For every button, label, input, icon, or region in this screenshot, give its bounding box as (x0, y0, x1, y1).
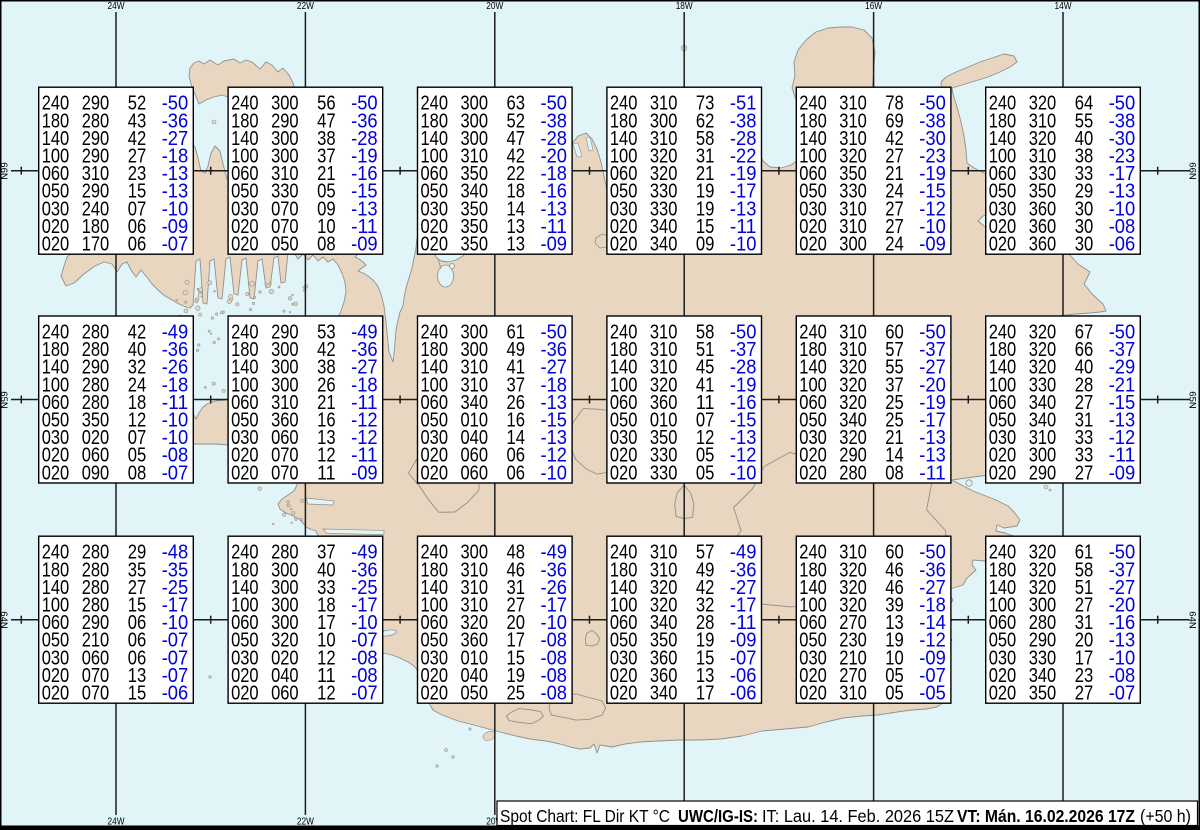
svg-text:08: 08 (128, 462, 147, 484)
svg-text:11: 11 (317, 462, 336, 484)
svg-text:020: 020 (610, 683, 638, 705)
svg-text:15: 15 (128, 683, 147, 705)
svg-text:-07: -07 (1109, 683, 1136, 705)
svg-text:12: 12 (317, 683, 336, 705)
svg-text:-06: -06 (162, 683, 189, 705)
svg-text:27: 27 (1075, 462, 1094, 484)
svg-text:30: 30 (1075, 234, 1094, 256)
svg-text:300: 300 (839, 234, 867, 256)
svg-text:27: 27 (1075, 683, 1094, 705)
svg-text:64N: 64N (1187, 611, 1198, 629)
svg-text:020: 020 (42, 683, 69, 705)
svg-text:06: 06 (507, 462, 526, 484)
svg-text:65N: 65N (1187, 391, 1198, 409)
svg-text:060: 060 (461, 462, 489, 484)
svg-text:310: 310 (839, 683, 867, 705)
svg-text:66N: 66N (1187, 162, 1198, 180)
svg-text:25: 25 (507, 683, 526, 705)
svg-text:070: 070 (271, 462, 299, 484)
svg-text:16W: 16W (865, 1, 882, 12)
svg-text:020: 020 (989, 234, 1017, 256)
svg-text:20W: 20W (486, 1, 503, 12)
svg-text:-10: -10 (730, 462, 757, 484)
svg-text:05: 05 (696, 462, 715, 484)
svg-text:IT: Lau. 14. Feb. 2026 15Z: IT: Lau. 14. Feb. 2026 15Z (762, 806, 954, 826)
svg-text:24W: 24W (108, 1, 125, 12)
svg-text:290: 290 (1029, 462, 1057, 484)
svg-text:09: 09 (696, 234, 715, 256)
svg-text:350: 350 (461, 234, 489, 256)
svg-text:Spot Chart: FL Dir KT °C: Spot Chart: FL Dir KT °C (500, 806, 670, 826)
svg-text:020: 020 (42, 234, 69, 256)
svg-text:020: 020 (799, 234, 827, 256)
svg-text:17: 17 (696, 683, 715, 705)
svg-text:-11: -11 (919, 462, 946, 484)
svg-text:340: 340 (650, 683, 678, 705)
svg-text:050: 050 (271, 234, 299, 256)
svg-text:020: 020 (610, 234, 638, 256)
svg-text:020: 020 (421, 234, 449, 256)
svg-text:24: 24 (885, 234, 904, 256)
svg-text:020: 020 (799, 462, 827, 484)
svg-text:020: 020 (231, 234, 259, 256)
svg-text:13: 13 (507, 234, 526, 256)
svg-text:-06: -06 (1109, 234, 1136, 256)
svg-text:18W: 18W (676, 1, 693, 12)
svg-text:020: 020 (989, 462, 1017, 484)
svg-text:020: 020 (421, 462, 449, 484)
svg-text:020: 020 (799, 683, 827, 705)
svg-text:-10: -10 (541, 462, 568, 484)
svg-text:(+50 h): (+50 h) (1140, 806, 1191, 826)
svg-text:-09: -09 (919, 234, 946, 256)
svg-text:360: 360 (1029, 234, 1057, 256)
svg-text:350: 350 (1029, 683, 1057, 705)
svg-text:22W: 22W (297, 1, 314, 12)
svg-text:-07: -07 (162, 462, 189, 484)
svg-text:050: 050 (461, 683, 489, 705)
svg-text:090: 090 (82, 462, 110, 484)
svg-text:-09: -09 (541, 234, 568, 256)
svg-text:070: 070 (82, 683, 110, 705)
svg-text:-10: -10 (730, 234, 757, 256)
svg-text:020: 020 (421, 683, 449, 705)
svg-text:UWC/IG-IS:: UWC/IG-IS: (678, 806, 758, 826)
svg-text:-05: -05 (919, 683, 946, 705)
svg-text:-09: -09 (351, 462, 378, 484)
svg-text:020: 020 (610, 462, 638, 484)
svg-text:VT: Mán. 16.02.2026 17Z: VT: Mán. 16.02.2026 17Z (957, 806, 1135, 826)
svg-text:08: 08 (885, 462, 904, 484)
svg-text:-06: -06 (730, 683, 757, 705)
svg-text:-09: -09 (351, 234, 378, 256)
svg-text:340: 340 (650, 234, 678, 256)
svg-text:330: 330 (650, 462, 678, 484)
svg-text:-07: -07 (351, 683, 378, 705)
svg-text:060: 060 (271, 683, 299, 705)
svg-text:020: 020 (231, 683, 259, 705)
svg-text:280: 280 (839, 462, 867, 484)
svg-text:020: 020 (231, 462, 259, 484)
svg-text:06: 06 (128, 234, 147, 256)
svg-text:-09: -09 (1109, 462, 1136, 484)
svg-text:-08: -08 (541, 683, 568, 705)
svg-text:08: 08 (317, 234, 336, 256)
svg-text:170: 170 (82, 234, 110, 256)
svg-text:020: 020 (42, 462, 69, 484)
svg-text:05: 05 (885, 683, 904, 705)
svg-text:14W: 14W (1055, 1, 1072, 12)
svg-text:-07: -07 (162, 234, 189, 256)
svg-text:020: 020 (989, 683, 1017, 705)
